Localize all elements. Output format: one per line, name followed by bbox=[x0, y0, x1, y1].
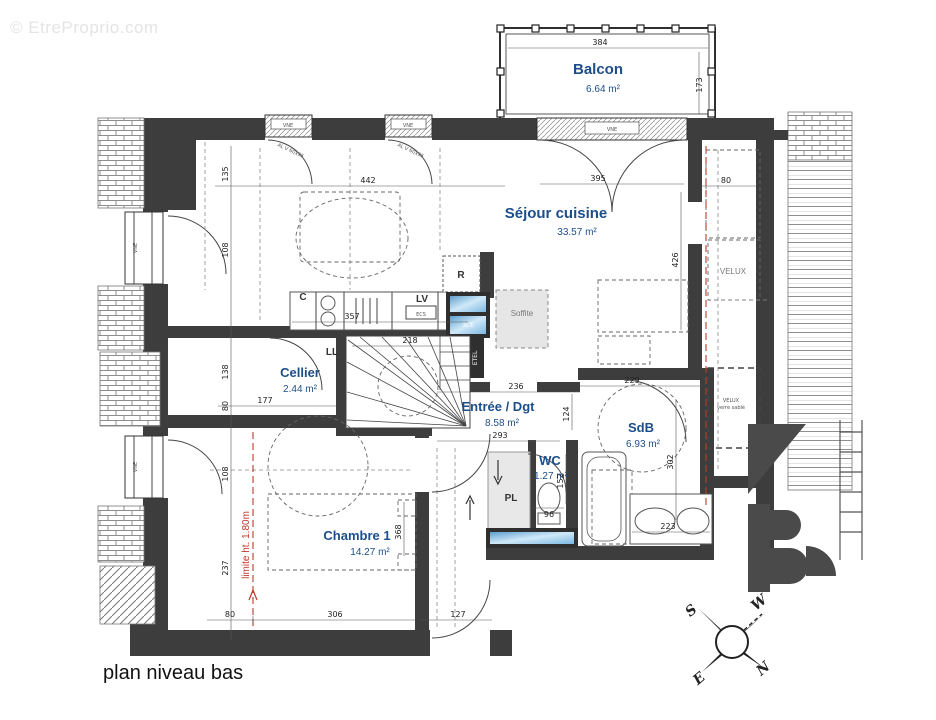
room-cellier-name: Cellier bbox=[280, 365, 320, 380]
dim-right-80: 80 bbox=[721, 176, 731, 185]
dim-bottom-80: 80 bbox=[225, 610, 235, 619]
dim-left-108: 108 bbox=[221, 466, 230, 481]
dim-218: 218 bbox=[402, 336, 417, 345]
dim-138: 138 bbox=[221, 364, 230, 379]
compass-east: E bbox=[689, 669, 708, 689]
dim-442: 442 bbox=[360, 176, 375, 185]
dim-124: 124 bbox=[562, 406, 571, 421]
dim-balcony-width: 384 bbox=[592, 38, 607, 47]
dim-237: 237 bbox=[221, 560, 230, 575]
floorplan-page: Balcon 6.64 m² Séjour cuisine 33.57 m² C… bbox=[0, 0, 936, 720]
dim-306: 306 bbox=[327, 610, 342, 619]
label-soffit: Soffite bbox=[511, 309, 534, 318]
dim-223: 223 bbox=[660, 522, 675, 531]
room-chambre-area: 14.27 m² bbox=[350, 547, 390, 558]
dim-395: 395 bbox=[590, 174, 605, 183]
compass-west: W bbox=[748, 591, 771, 614]
dim-177: 177 bbox=[257, 396, 272, 405]
dim-balcony-height: 173 bbox=[695, 77, 704, 92]
dim-108: 108 bbox=[221, 242, 230, 257]
room-entree-area: 8.58 m² bbox=[485, 418, 520, 429]
bathroom-fixtures bbox=[582, 380, 712, 546]
room-entree-name: Entrée / Dgt bbox=[462, 399, 536, 414]
window-spec-2: AL V 60x95 bbox=[396, 142, 424, 159]
compass-north: N bbox=[753, 658, 775, 680]
window-tag-2: VNE bbox=[403, 123, 413, 129]
compass-south: S bbox=[682, 602, 700, 621]
window-tag-3: VNE bbox=[607, 127, 617, 133]
label-ecs: ECS bbox=[416, 312, 426, 318]
dim-left-80: 80 bbox=[221, 401, 230, 411]
room-cellier-area: 2.44 m² bbox=[283, 384, 318, 395]
window-tag-5: VNE bbox=[133, 462, 139, 472]
label-dishwasher: LV bbox=[416, 294, 428, 305]
window-left-2 bbox=[125, 436, 222, 498]
dim-293: 293 bbox=[492, 431, 507, 440]
window-spec-1: AL V 60x95 bbox=[276, 142, 304, 159]
window-tag-1: VNE bbox=[283, 123, 293, 129]
room-balcon-area: 6.64 m² bbox=[586, 84, 621, 95]
stairs bbox=[346, 336, 470, 428]
label-3ce: 3CE bbox=[462, 322, 474, 329]
dim-368: 368 bbox=[394, 524, 403, 539]
window-tag-4: VNE bbox=[133, 243, 139, 253]
window-left-1 bbox=[125, 212, 226, 284]
dim-127: 127 bbox=[450, 610, 465, 619]
label-height-limit: limite ht. 1.80m bbox=[241, 511, 252, 579]
label-velux-1: VELUX bbox=[720, 267, 747, 276]
entry-closet bbox=[466, 452, 578, 548]
label-velux-2-sub: verre sablé bbox=[717, 404, 745, 411]
room-wc-name: WC bbox=[539, 453, 561, 468]
floorplan-drawing: Balcon 6.64 m² Séjour cuisine 33.57 m² C… bbox=[0, 0, 936, 720]
watermark-etreproprio: © EtreProprio.com bbox=[10, 18, 159, 38]
dim-236: 236 bbox=[508, 382, 523, 391]
dim-152: 152 bbox=[556, 473, 565, 488]
dim-229: 229 bbox=[624, 376, 639, 385]
label-etel: ETEL bbox=[472, 350, 479, 365]
room-sdb-area: 6.93 m² bbox=[626, 439, 661, 450]
label-washer: LL bbox=[326, 347, 338, 358]
label-closet: PL bbox=[505, 493, 518, 504]
room-chambre-name: Chambre 1 bbox=[323, 528, 390, 543]
dim-135: 135 bbox=[221, 166, 230, 181]
room-sdb-name: SdB bbox=[628, 420, 654, 435]
room-sejour-name: Séjour cuisine bbox=[505, 205, 608, 222]
dim-302: 302 bbox=[666, 454, 675, 469]
plan-title: plan niveau bas bbox=[103, 662, 243, 685]
label-cooker: C bbox=[299, 292, 306, 303]
dim-357: 357 bbox=[344, 312, 359, 321]
label-fridge: R bbox=[457, 270, 465, 281]
compass-rose bbox=[698, 608, 766, 672]
room-balcon-name: Balcon bbox=[573, 61, 623, 78]
dim-96: 96 bbox=[544, 510, 554, 519]
room-sejour-area: 33.57 m² bbox=[557, 227, 597, 238]
dim-426: 426 bbox=[671, 252, 680, 267]
label-velux-2: VELUX bbox=[723, 398, 740, 404]
